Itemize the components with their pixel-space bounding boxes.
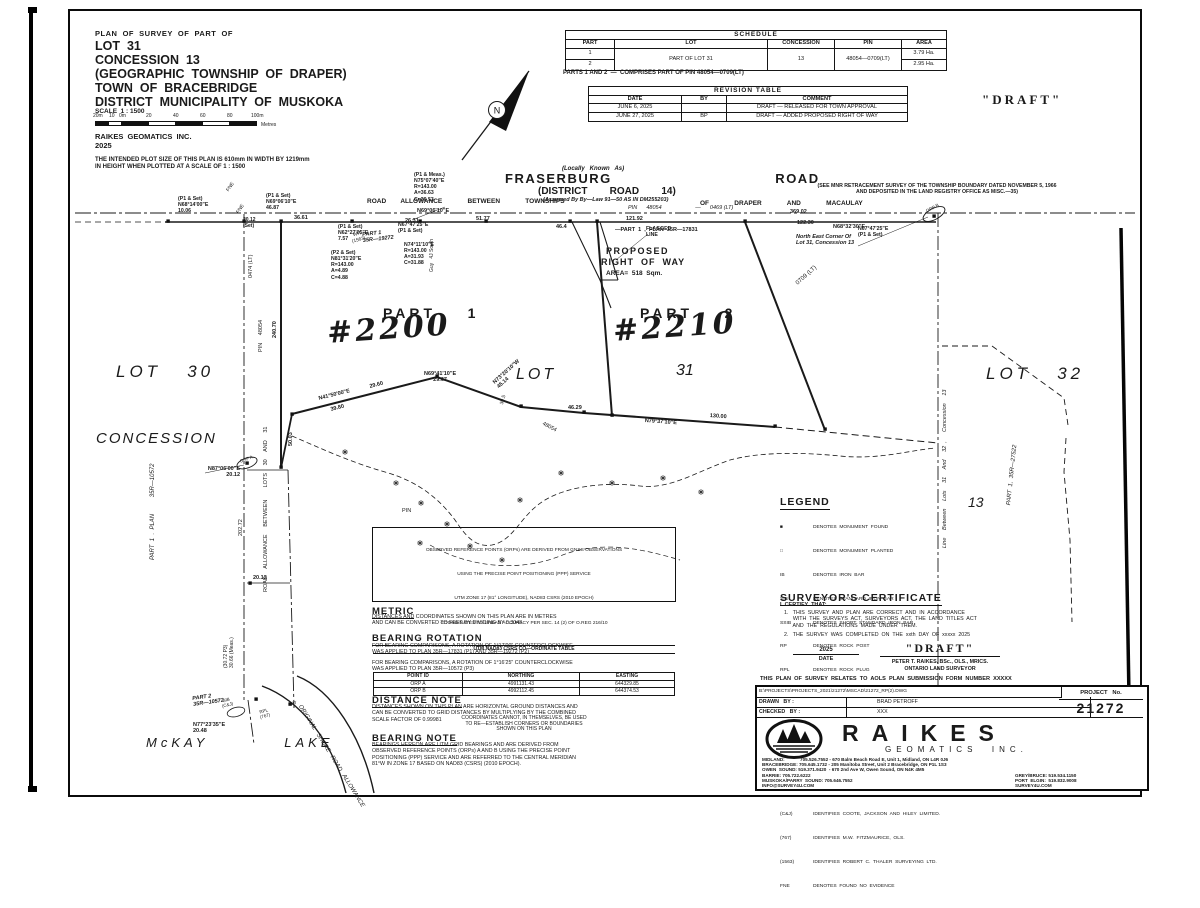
dim-label: 130.00	[710, 413, 727, 421]
certificate-signature: "DRAFT"	[880, 641, 1000, 657]
bearing-rotation-body2: FOR BEARING COMPARISONS, A ROTATION OF 1…	[372, 660, 573, 673]
orp-header: EASTING	[580, 673, 675, 681]
schedule-header: AREA	[902, 40, 947, 49]
checked-by-value: XXX	[846, 707, 1091, 718]
schedule-cell: 48054—0709(LT)	[835, 49, 902, 71]
legend-text: DENOTES FOUND NO EVIDENCE	[813, 884, 895, 889]
legend-text: DENOTES IRON BAR	[813, 573, 864, 578]
dim-label: 46.4	[556, 224, 567, 230]
mnr-retracement-note: (SEE MNR RETRACEMENT SURVEY OF THE TOWNS…	[737, 183, 1137, 195]
schedule-note: PARTS 1 AND 2 — COMPRISES PART OF PIN 48…	[563, 70, 744, 77]
legend-text: IDENTIFIES M.W. FITZMAURICE, OLS.	[813, 836, 905, 841]
orp-note: USING THE PRECISE POINT POSITIONING (PPP…	[373, 572, 675, 577]
legend-symbol: FNE	[780, 884, 813, 889]
tie-bearing-label: N87°06'00"E 20.12	[184, 466, 240, 479]
schedule-header: PIN	[835, 40, 902, 49]
flagged-line-label: FLAGGED LINE	[646, 226, 671, 238]
scale-tick: 10	[109, 114, 115, 120]
bearing-cluster: N77°23'35"E 20.48	[193, 722, 225, 735]
legend-text: DENOTES MONUMENT PLANTED	[813, 549, 893, 554]
dim-202-72: 202.72	[238, 519, 244, 536]
mckay-lake-label: McKAY LAKE	[146, 735, 334, 750]
schedule-cell: 13	[768, 49, 835, 71]
title-concession: CONCESSION 13	[95, 53, 200, 68]
metric-body: DISTANCES AND COORDINATES SHOWN ON THIS …	[372, 614, 557, 627]
checked-by-label: CHECKED BY :	[757, 707, 847, 718]
bearing-note-body: BEARINGS HEREON ARE UTM GRID BEARINGS AN…	[372, 742, 576, 767]
allowance-label-rotated: ROAD ALLOWANCE BETWEEN LOTS 30 AND 31	[263, 427, 269, 592]
revision-header: DATE	[589, 96, 682, 104]
dim-240-70: 240.70	[272, 321, 278, 338]
scale-tick: 0m	[119, 114, 126, 120]
dim-label: 46.29	[568, 405, 582, 411]
dim-label: 121.92	[626, 216, 643, 222]
legend-symbol: □	[780, 549, 813, 554]
schedule-header: PART	[566, 40, 615, 49]
proposed-row-area: AREA= 518 Sqm.	[606, 270, 662, 278]
legend-item: (C&J)IDENTIFIES COOTE, JACKSON AND HILEY…	[780, 812, 1080, 817]
brand-name: RAIKES	[842, 720, 1007, 747]
legend-symbol: (767)	[780, 836, 813, 841]
certificate-surveyor: PETER T. RAIKES, BSc., OLS., MRICS.	[862, 659, 1018, 665]
curve-data-cluster: (P1 & Meas.) N75°07'40"E R=143.00 A=36.6…	[414, 172, 445, 203]
legend-symbol: ■	[780, 525, 813, 530]
scale-tick: 100m	[251, 114, 264, 120]
title-town: TOWN OF BRACEBRIDGE	[95, 81, 257, 96]
orp-cell: 4991131.43	[463, 680, 580, 688]
revision-cell	[682, 104, 727, 113]
orp-cell: 4992112.45	[463, 688, 580, 696]
proposed-row-label: PROPOSED	[606, 246, 669, 257]
lot30-label: LOT 30	[116, 362, 214, 382]
ne-corner-note: North East Corner Of Lot 31, Concession …	[796, 234, 854, 247]
title-lot: LOT 31	[95, 39, 141, 54]
bearing-cluster: N67°47'25"E (P1 & Set)	[858, 226, 888, 238]
plot-size-note: THE INTENDED PLOT SIZE OF THIS PLAN IS 6…	[95, 157, 310, 171]
curve-data-cluster: (P2 & Set) N81°31'20"E R=143.00 A=4.89 C…	[331, 250, 361, 281]
legend-symbol: IB	[780, 573, 813, 578]
revision-title: REVISION TABLE	[589, 87, 908, 96]
scale-tick: 80	[227, 114, 233, 120]
contact-line: SURVEY4U.COM	[1015, 783, 1052, 788]
schedule-title: SCHEDULE	[566, 31, 947, 40]
scale-unit: Metres	[261, 123, 276, 129]
dim-label: 36.61	[294, 215, 308, 221]
dim-cluster: 20.12 (Set)	[243, 218, 256, 230]
schedule-table: SCHEDULE PART LOT CONCESSION PIN AREA 1 …	[565, 30, 947, 71]
legend-item: ■DENOTES MONUMENT FOUND	[780, 525, 1080, 530]
dim-label: 51.77	[476, 216, 490, 222]
guy-wire-label: Guy 4J South	[430, 239, 436, 272]
revision-cell: DRAFT — ADDED PROPOSED RIGHT OF WAY	[727, 113, 908, 122]
scale-tick: 20	[146, 114, 152, 120]
schedule-cell: 2	[566, 60, 615, 71]
revision-cell: JUNE 6, 2025	[589, 104, 682, 113]
dim-20-12: 20.12	[253, 575, 267, 581]
bearing-rotation-body1: FOR BEARING COMPARISONS, A ROTATION OF 1…	[372, 643, 573, 656]
contact-line: INFO@SURVEY4U.COM	[762, 783, 814, 788]
brand-subtitle: GEOMATICS INC.	[885, 745, 1028, 754]
orp-cell: ORP A	[374, 680, 463, 688]
pin-0474-rotated: 0474 (LT)	[248, 255, 254, 278]
pin-48054-rotated: PIN 48054	[258, 320, 264, 352]
road-allowance-left: ROAD ALLOWANCE BETWEEN TOWNSHIPS	[367, 198, 565, 206]
orp-cell: 644374.53	[580, 688, 675, 696]
bearing-label: N69°06'10"E	[417, 208, 449, 214]
legend-symbol: RPL	[780, 668, 813, 673]
certificate-item1: 1. THIS SURVEY AND PLAN ARE CORRECT AND …	[784, 610, 977, 629]
orp-header: NORTHING	[463, 673, 580, 681]
left-plan-ref-rotated: PART 1 . PLAN 35R—10572	[150, 464, 157, 561]
concession-left-label: CONCESSION	[96, 430, 217, 448]
certificate-item2: 2. THE SURVEY WAS COMPLETED ON THE xxth …	[784, 632, 970, 638]
legend-item: IBDENOTES IRON BAR	[780, 573, 1080, 578]
legend-item: FNEDENOTES FOUND NO EVIDENCE	[780, 884, 1080, 889]
plan-subtitle: PLAN OF SURVEY OF PART OF	[95, 30, 233, 39]
legend-text: IDENTIFIES COOTE, JACKSON AND HILEY LIMI…	[813, 812, 940, 817]
draft-stamp: "DRAFT"	[982, 92, 1062, 107]
legend-symbol: (C&J)	[780, 812, 813, 817]
aols-note: THIS PLAN OF SURVEY RELATES TO AOLS PLAN…	[760, 676, 1012, 683]
revision-header: BY	[682, 96, 727, 104]
dim-50-03: 50.03	[288, 432, 294, 446]
east-boundary-line	[745, 222, 825, 430]
dim-cluster: (P1 & Set) N69°06'10"E 46.87	[266, 193, 296, 211]
schedule-header: LOT	[615, 40, 768, 49]
lot31-number: 31	[676, 362, 694, 381]
orp-note: UTM ZONE 17 (81° LONGITUDE), NAD83 CSRS …	[373, 596, 675, 601]
certificate-surveyor-title: ONTARIO LAND SURVEYOR	[862, 666, 1018, 672]
pin-word: PIN	[402, 508, 411, 514]
survey-plan-page: { "title_block": { "line0": "PLAN OF SUR…	[0, 0, 1200, 805]
title-township: (GEOGRAPHIC TOWNSHIP OF DRAPER)	[95, 67, 347, 82]
orp-cell: 644329.85	[580, 680, 675, 688]
orp-box: OBSERVED REFERENCE POINTS (ORPs) ARE DER…	[372, 527, 676, 602]
schedule-cell: 3.79 Ha.	[902, 49, 947, 60]
title-bar-box: B:\PROJECTS\PROJECTS_2021\21272\MSCAD\21…	[755, 685, 1149, 791]
heavy-right-line	[1121, 228, 1129, 697]
revision-cell: DRAFT — RELEASED FOR TOWN APPROVAL	[727, 104, 908, 113]
dim-cluster: (P1 & Set) N68°14'00"E 10.06	[178, 196, 208, 214]
dim-30-72-rotated: (30.72 P3) 30.66 (Meas.)	[224, 637, 236, 668]
scale-tick: 60	[200, 114, 206, 120]
legend-item: (767)IDENTIFIES M.W. FITZMAURICE, OLS.	[780, 836, 1080, 841]
project-number: 21272	[1059, 699, 1143, 718]
scale-tick: 20m	[93, 114, 103, 120]
north-letter: N	[494, 106, 501, 116]
lot32-label: LOT 32	[986, 364, 1084, 384]
certificate-date-label: DATE	[793, 656, 859, 662]
scale-bar: 20m 10 0m 20 40 60 80 100m Metres	[95, 114, 315, 130]
legend-item: (1563)IDENTIFIES ROBERT C. THALER SURVEY…	[780, 860, 1080, 865]
schedule-header: CONCESSION	[768, 40, 835, 49]
north-arrow: N	[462, 71, 529, 160]
schedule-cell: PART OF LOT 31	[615, 49, 768, 71]
bearing-cluster: N69°41'10"E 29.67	[424, 371, 456, 384]
revision-cell: BP	[682, 113, 727, 122]
schedule-cell: 2.95 Ha.	[902, 60, 947, 71]
legend-item: □DENOTES MONUMENT PLANTED	[780, 549, 1080, 554]
dim-label: 122.30	[797, 220, 814, 226]
revision-header: COMMENT	[727, 96, 908, 104]
orp-note: OBSERVED REFERENCE POINTS (ORPs) ARE DER…	[373, 548, 675, 553]
road-pin: PIN 48054 — 0469 (LT)	[628, 205, 733, 211]
orp-header: POINT ID	[374, 673, 463, 681]
scale-tick: 40	[173, 114, 179, 120]
certificate-date-value: 2025	[793, 647, 859, 655]
revision-cell: JUNE 27, 2025	[589, 113, 682, 122]
proposed-row-label: RIGHT OF WAY	[601, 257, 685, 268]
legend-text: DENOTES MONUMENT FOUND	[813, 525, 888, 530]
dim-label: 369.02	[790, 209, 807, 215]
legend-text: IDENTIFIES ROBERT C. THALER SURVEYING LT…	[813, 860, 937, 865]
revision-table: REVISION TABLE DATE BY COMMENT JUNE 6, 2…	[588, 86, 908, 122]
bearing-cluster: N67°47'25"E (P1 & Set)	[398, 222, 428, 234]
distance-note-body: DISTANCES SHOWN ON THIS PLAN ARE HORIZON…	[372, 704, 578, 723]
certificate-intro: I CERTIFY THAT:	[780, 602, 827, 608]
firm-year: 2025	[95, 142, 112, 151]
raikes-logo	[765, 719, 823, 761]
schedule-cell: 1	[566, 49, 615, 60]
legend-symbol: (1563)	[780, 860, 813, 865]
